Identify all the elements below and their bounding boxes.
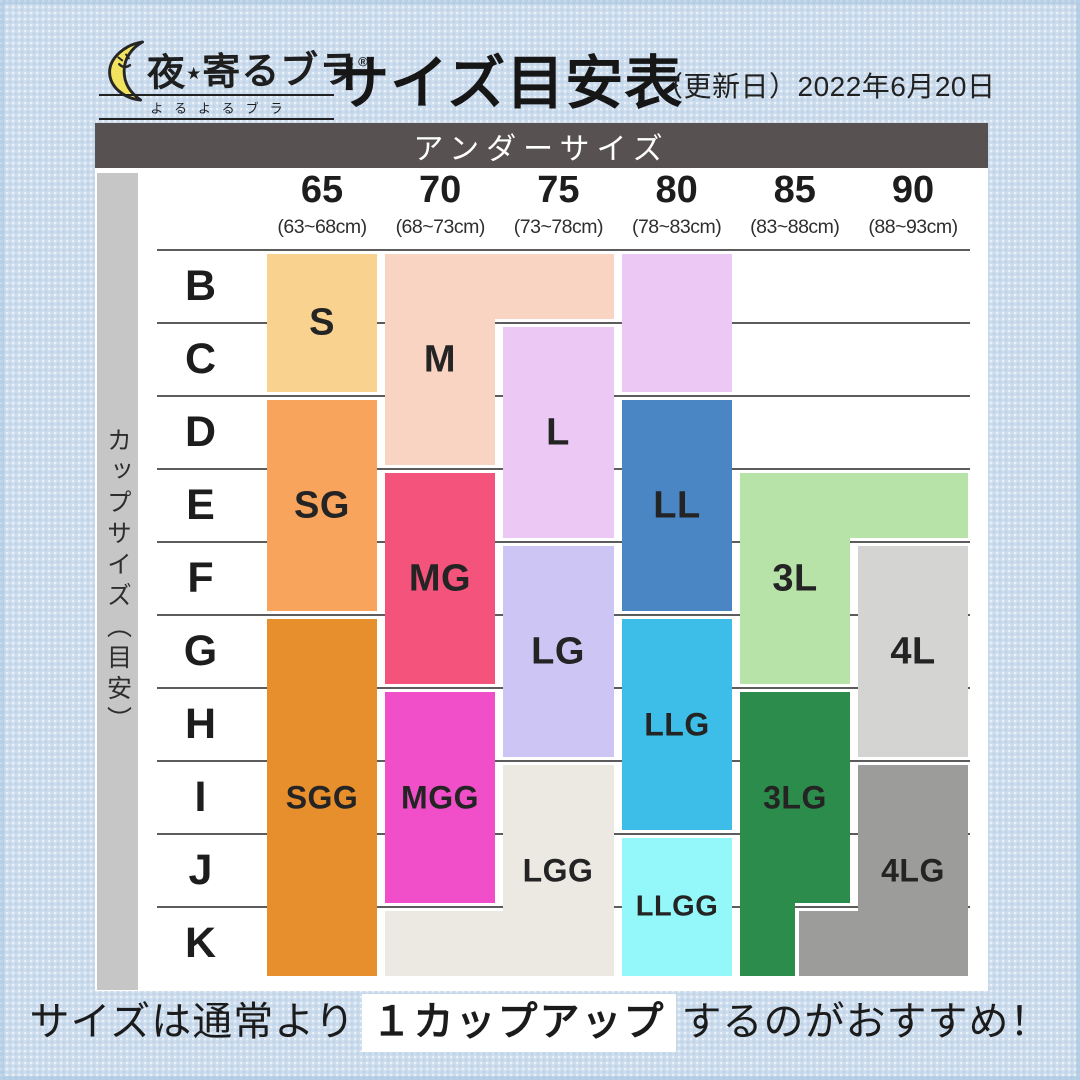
- page-title: サイズ目安表: [331, 36, 683, 120]
- star-icon: ★: [186, 64, 203, 83]
- note-pre: サイズは通常より: [30, 1000, 356, 1044]
- cup-size-sidebar: カップサイズ（目安）: [97, 173, 138, 990]
- column-header-65: 65(63~68cm): [263, 170, 381, 239]
- underband-size-value: 70: [381, 170, 499, 210]
- size-block-4LG: [799, 911, 968, 976]
- size-block-label-4LG: 4LG: [881, 853, 945, 890]
- underband-size-range: (83~88cm): [736, 216, 854, 239]
- row-label-C: C: [138, 323, 263, 396]
- column-header-75: 75(73~78cm): [499, 170, 617, 239]
- underband-size-range: (73~78cm): [499, 216, 617, 239]
- cup-size-label: カップサイズ（目安）: [100, 427, 136, 737]
- size-table: アンダーサイズ カップサイズ（目安） 65(63~68cm)70(68~73cm…: [95, 123, 988, 991]
- size-block-label-3L: 3L: [772, 558, 817, 601]
- underband-size-value: 75: [499, 170, 617, 210]
- size-block-label-SG: SG: [294, 485, 350, 528]
- size-block-label-LL: LL: [653, 485, 700, 528]
- size-block-label-LGG: LGG: [523, 853, 594, 890]
- row-label-D: D: [138, 396, 263, 469]
- row-label-F: F: [138, 542, 263, 615]
- row-label-E: E: [138, 469, 263, 542]
- underband-size-range: (68~73cm): [381, 216, 499, 239]
- brand-logo: 夜★寄るブラ® よるよるブラ: [97, 38, 327, 114]
- row-label-H: H: [138, 688, 263, 761]
- size-block-LGG: [385, 911, 614, 976]
- size-block-label-3LG: 3LG: [763, 780, 827, 817]
- row-label-G: G: [138, 615, 263, 688]
- size-block-label-LG: LG: [531, 631, 585, 674]
- row-label-B: B: [138, 250, 263, 323]
- row-label-K: K: [138, 907, 263, 980]
- row-label-I: I: [138, 761, 263, 834]
- size-block-label-4L: 4L: [890, 631, 935, 674]
- note-post: するのがおすすめ！: [682, 1000, 1051, 1044]
- size-block-label-LLGG: LLGG: [636, 891, 719, 924]
- underband-size-value: 85: [736, 170, 854, 210]
- column-header-70: 70(68~73cm): [381, 170, 499, 239]
- size-block-label-LLG: LLG: [644, 707, 709, 744]
- size-block-label-SGG: SGG: [286, 780, 359, 817]
- row-label-J: J: [138, 834, 263, 907]
- grid-line: [157, 249, 970, 251]
- update-date: （更新日）2022年6月20日: [655, 65, 996, 105]
- underband-size-range: (78~83cm): [618, 216, 736, 239]
- size-block-label-M: M: [424, 339, 456, 382]
- size-block-label-S: S: [309, 302, 335, 345]
- size-block-3LG: [740, 692, 795, 976]
- size-block-label-L: L: [546, 412, 570, 455]
- underband-size-value: 80: [618, 170, 736, 210]
- size-block-L: [622, 254, 732, 392]
- column-header-85: 85(83~88cm): [736, 170, 854, 239]
- column-header-80: 80(78~83cm): [618, 170, 736, 239]
- brand-furigana: よるよるブラ: [99, 94, 334, 120]
- size-block-label-MG: MG: [409, 558, 471, 601]
- under-size-band: アンダーサイズ: [95, 123, 988, 168]
- note-highlight: １カップアップ: [362, 994, 676, 1052]
- recommendation-note: サイズは通常より１カップアップするのがおすすめ！: [0, 989, 1080, 1047]
- underband-size-value: 90: [854, 170, 972, 210]
- size-block-label-MGG: MGG: [401, 780, 479, 817]
- underband-size-range: (63~68cm): [263, 216, 381, 239]
- column-header-90: 90(88~93cm): [854, 170, 972, 239]
- underband-size-range: (88~93cm): [854, 216, 972, 239]
- underband-size-value: 65: [263, 170, 381, 210]
